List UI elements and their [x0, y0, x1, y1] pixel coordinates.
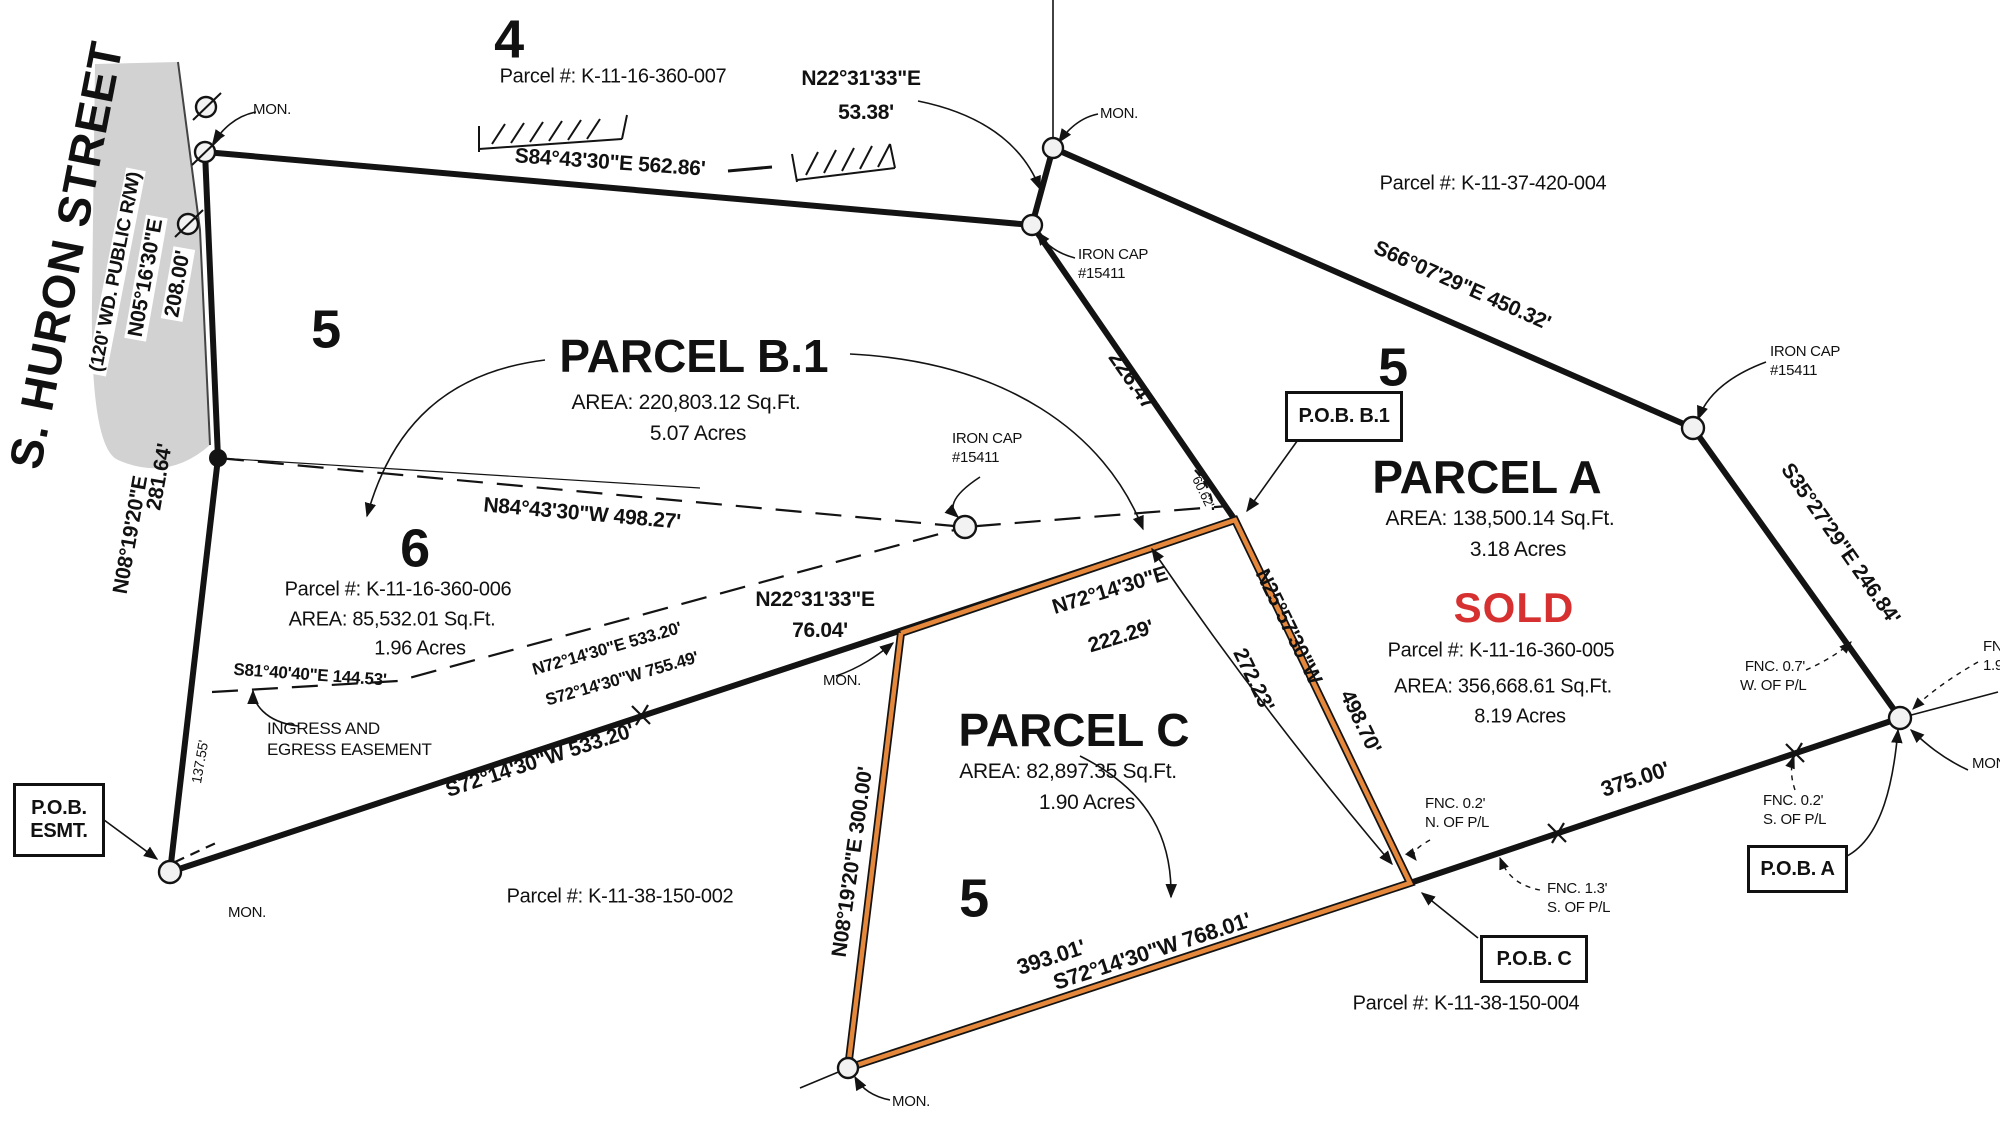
parcel-no-north: Parcel #: K-11-16-360-007 [500, 67, 727, 88]
fnc-cut-note: FNC 1.9 [1983, 638, 2000, 676]
parcel-no-southwest: Parcel #: K-11-38-150-002 [507, 887, 734, 908]
pob-esmt-line2: ESMT. [30, 820, 87, 843]
mon-label-right-cut: MON. [1972, 755, 2000, 774]
section-6: 6 [400, 521, 430, 578]
thin-from-dot [218, 458, 700, 488]
parcel-a-total-area: AREA: 356,668.61 Sq.Ft. [1394, 677, 1612, 698]
iron-cap-line2: #15411 [952, 449, 1022, 468]
boundary-tie-53 [1032, 148, 1053, 225]
mon-label-topmid: MON. [1100, 106, 1138, 122]
fnc-line2: W. OF P/L [1740, 677, 1805, 696]
iron-cap-mid [954, 516, 976, 538]
thin-lines [218, 0, 1998, 1088]
leader-fnc07 [1806, 642, 1851, 670]
monument-bottom [838, 1058, 858, 1078]
pob-a-label: P.O.B. A [1760, 858, 1834, 881]
ingress-line2: EGRESS EASEMENT [267, 739, 432, 760]
leader-pob-c [1422, 893, 1478, 938]
leader-mon-topmid [1059, 114, 1098, 142]
parcel-no-south: Parcel #: K-11-38-150-004 [1353, 994, 1580, 1015]
iron-cap-line1: IRON CAP [1770, 343, 1840, 362]
fnc-07-note: FNC. 0.7' W. OF P/L [1740, 658, 1805, 696]
leader-pob-b1 [1247, 437, 1300, 511]
fnc-line2: N. OF P/L [1425, 814, 1489, 833]
hatch-bracket-right [792, 144, 895, 182]
parcel-b1-title: PARCEL B.1 [559, 332, 828, 380]
pob-c-box: P.O.B. C [1480, 935, 1588, 983]
dash-after-562 [728, 167, 772, 171]
iron-cap-right [1682, 417, 1704, 439]
pob-c-label: P.O.B. C [1496, 948, 1571, 971]
leader-fnc02s [1792, 757, 1796, 790]
thin-ext-right-mon [1900, 692, 1998, 718]
leader-fnc02n [1414, 840, 1430, 860]
parcel-6-area: AREA: 85,532.01 Sq.Ft. [289, 610, 496, 631]
dim-mid-bearing: N22°31'33"E [755, 589, 874, 611]
parcel-no-northeast: Parcel #: K-11-37-420-004 [1380, 174, 1607, 195]
parcel-a-title: PARCEL A [1372, 453, 1601, 501]
parcel-a-area: AREA: 138,500.14 Sq.Ft. [1386, 508, 1615, 530]
pob-a-box: P.O.B. A [1747, 845, 1848, 893]
monument-bottom-left [159, 861, 181, 883]
sold-badge: SOLD [1454, 586, 1575, 630]
fnc-line1: FNC. 0.2' [1425, 795, 1489, 814]
monument-top-mid [1043, 138, 1063, 158]
section-5-left: 5 [311, 302, 341, 359]
angle-point-dot [209, 449, 227, 467]
mon-label-bottom: MON. [892, 1094, 930, 1110]
parcel-a-no: Parcel #: K-11-16-360-005 [1388, 641, 1615, 662]
leader-parcel-b1-left [367, 360, 545, 516]
leader-ironcap-right [1698, 362, 1766, 419]
fnc-line2: S. OF P/L [1763, 811, 1826, 830]
monument-bottom-right [1889, 707, 1911, 729]
dim-tie-dist: 53.38' [838, 102, 894, 124]
iron-cap-top [1022, 215, 1042, 235]
leader-mon-right-cut [1911, 730, 1968, 770]
pob-b1-box: P.O.B. B.1 [1285, 391, 1403, 442]
mon-label-topleft: MON. [253, 102, 291, 118]
fnc-line2: 1.9 [1983, 657, 2000, 676]
fnc-13-note: FNC. 1.3' S. OF P/L [1547, 880, 1610, 918]
parcel-a-acres: 3.18 Acres [1470, 539, 1566, 561]
survey-plat: S. HURON STREET (120' WD. PUBLIC R/W) 4 … [0, 0, 2000, 1143]
iron-cap-line1: IRON CAP [952, 430, 1022, 449]
parcel-a-total-acres: 8.19 Acres [1474, 707, 1566, 728]
fnc-line1: FNC. 0.7' [1740, 658, 1805, 677]
section-5-bottom: 5 [959, 871, 989, 928]
fnc-line1: FNC [1983, 638, 2000, 657]
plat-linework [0, 0, 2000, 1143]
section-5-right: 5 [1378, 340, 1408, 397]
ingress-line1: INGRESS AND [267, 718, 432, 739]
mon-label-bottomleft: MON. [228, 905, 266, 921]
dashed-n84-line [218, 458, 1228, 527]
iron-cap-label-top: IRON CAP #15411 [1078, 246, 1148, 284]
leader-fnc-cut [1913, 662, 1978, 709]
iron-cap-line1: IRON CAP [1078, 246, 1148, 265]
pob-esmt-line1: P.O.B. [31, 797, 87, 820]
leader-tie-53 [918, 101, 1040, 189]
parcel-c-title: PARCEL C [959, 706, 1190, 754]
ingress-easement-note: INGRESS AND EGRESS EASEMENT [267, 718, 432, 761]
pob-b1-label: P.O.B. B.1 [1298, 405, 1389, 428]
parcel-c-acres: 1.90 Acres [1039, 792, 1135, 814]
leader-ironcap-mid [953, 477, 980, 517]
leader-mon-bottom [855, 1077, 890, 1100]
leader-fnc13 [1500, 858, 1540, 890]
fnc-line1: FNC. 1.3' [1547, 880, 1610, 899]
parcel-6-no: Parcel #: K-11-16-360-006 [285, 580, 512, 601]
leader-pob-a [1843, 730, 1898, 858]
fnc-line2: S. OF P/L [1547, 899, 1610, 918]
dim-mid-dist: 76.04' [792, 620, 848, 642]
leader-pob-esmt [100, 817, 157, 859]
mon-label-parcelc-corner: MON. [823, 673, 861, 689]
dim-tie-bearing: N22°31'33"E [801, 68, 920, 90]
parcel-6-acres: 1.96 Acres [374, 639, 466, 660]
parcel-b1-area: AREA: 220,803.12 Sq.Ft. [572, 392, 801, 414]
iron-cap-label-mid: IRON CAP #15411 [952, 430, 1022, 468]
fnc-line1: FNC. 0.2' [1763, 792, 1826, 811]
iron-cap-line2: #15411 [1770, 362, 1840, 381]
parcel-c-area: AREA: 82,897.35 Sq.Ft. [959, 761, 1177, 783]
iron-cap-line2: #15411 [1078, 265, 1148, 284]
fnc-02s-note: FNC. 0.2' S. OF P/L [1763, 792, 1826, 830]
fnc-02n-note: FNC. 0.2' N. OF P/L [1425, 795, 1489, 833]
section-4: 4 [494, 12, 524, 69]
pob-esmt-box: P.O.B. ESMT. [13, 783, 105, 857]
iron-cap-label-right: IRON CAP #15411 [1770, 343, 1840, 381]
parcel-b1-acres: 5.07 Acres [650, 423, 746, 445]
